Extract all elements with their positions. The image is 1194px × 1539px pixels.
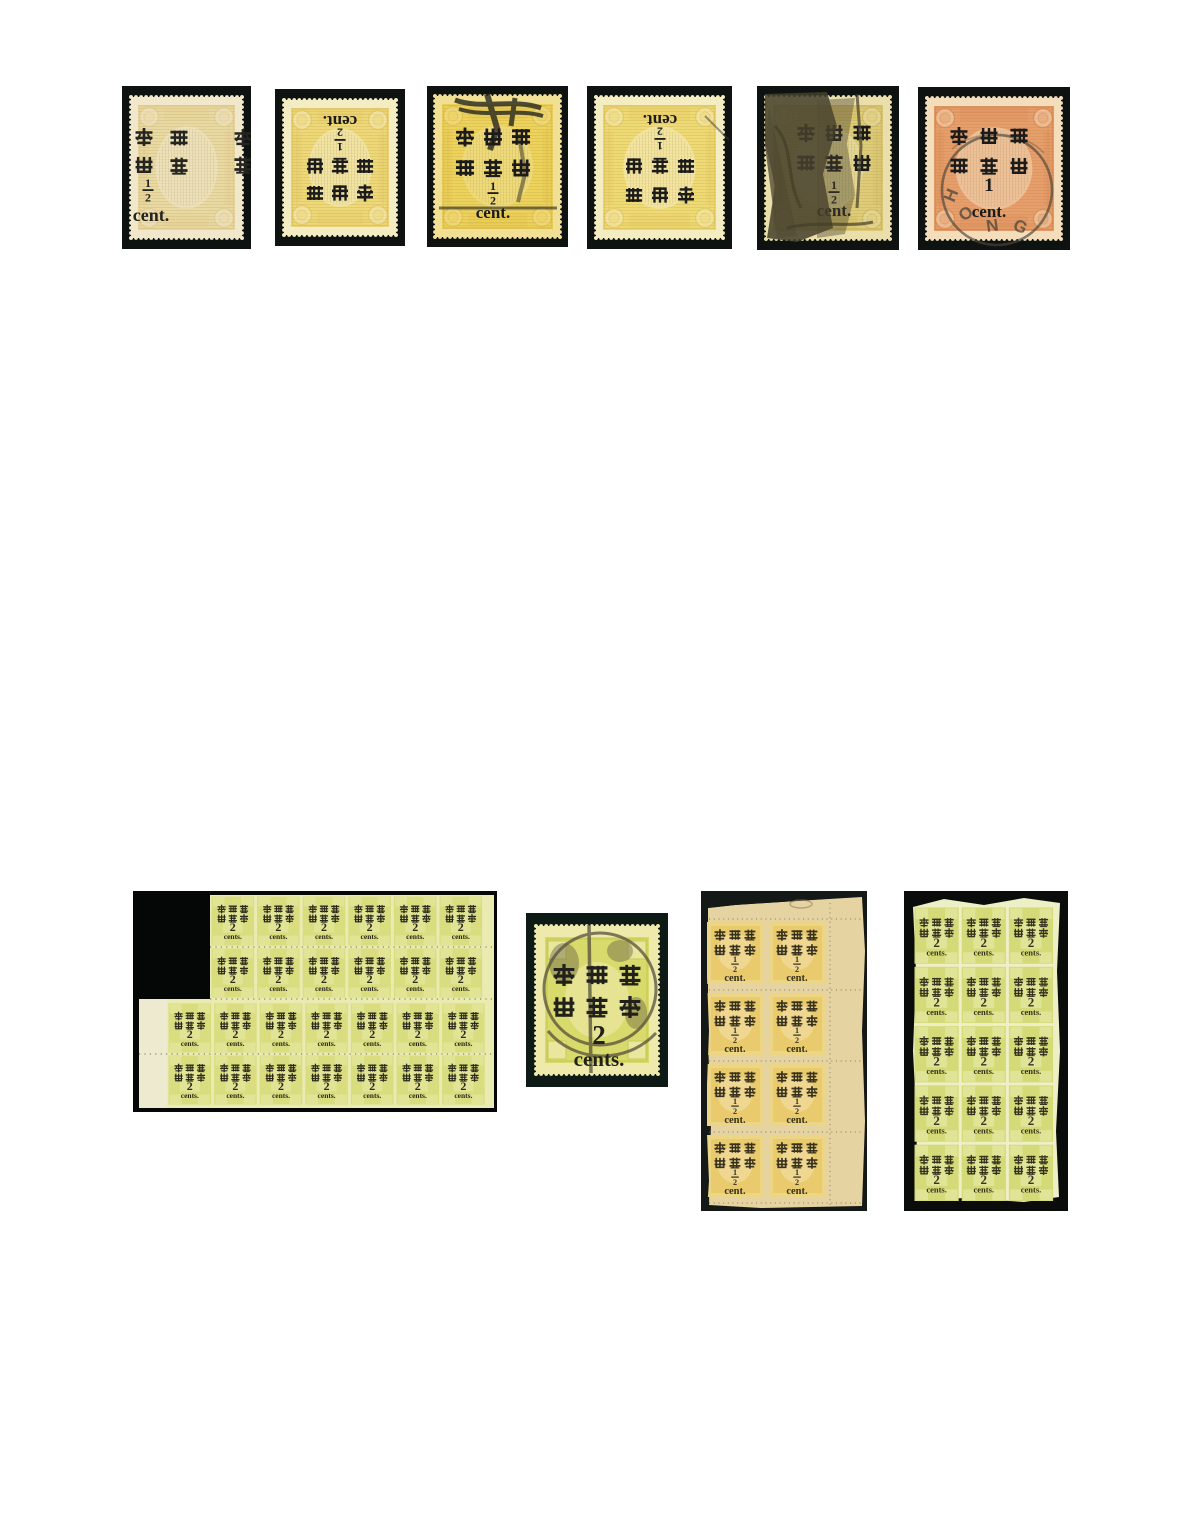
svg-text:cents.: cents. xyxy=(272,1091,290,1100)
svg-text:cents.: cents. xyxy=(318,1039,336,1048)
svg-text:cents.: cents. xyxy=(318,1091,336,1100)
svg-text:cents.: cents. xyxy=(181,1091,199,1100)
svg-text:cents.: cents. xyxy=(406,932,424,941)
svg-text:cents.: cents. xyxy=(974,1007,995,1017)
svg-text:cent.: cent. xyxy=(786,1186,808,1197)
svg-text:cents.: cents. xyxy=(226,1039,244,1048)
svg-text:cents.: cents. xyxy=(974,1185,995,1195)
svg-text:cents.: cents. xyxy=(363,1091,381,1100)
svg-text:cents.: cents. xyxy=(926,948,947,958)
svg-text:cents.: cents. xyxy=(1021,1007,1042,1017)
svg-text:cents.: cents. xyxy=(452,984,470,993)
svg-text:cents.: cents. xyxy=(272,1039,290,1048)
svg-text:cent.: cent. xyxy=(323,112,357,131)
svg-text:1: 1 xyxy=(984,175,994,196)
svg-text:cent.: cent. xyxy=(724,973,746,984)
svg-text:cent.: cent. xyxy=(643,111,677,130)
svg-text:cents.: cents. xyxy=(409,1039,427,1048)
svg-text:cents.: cents. xyxy=(452,932,470,941)
svg-text:cents.: cents. xyxy=(269,932,287,941)
svg-text:cents.: cents. xyxy=(361,984,379,993)
svg-text:cents.: cents. xyxy=(926,1125,947,1135)
svg-text:cent.: cent. xyxy=(133,205,169,225)
svg-text:cents.: cents. xyxy=(361,932,379,941)
svg-text:cents.: cents. xyxy=(1021,948,1042,958)
svg-text:cents.: cents. xyxy=(315,932,333,941)
svg-text:cents.: cents. xyxy=(574,1047,625,1071)
svg-text:cents.: cents. xyxy=(926,1007,947,1017)
svg-text:cents.: cents. xyxy=(226,1091,244,1100)
svg-text:cents.: cents. xyxy=(181,1039,199,1048)
svg-text:cent.: cent. xyxy=(972,202,1006,221)
svg-text:cents.: cents. xyxy=(454,1091,472,1100)
svg-text:cent.: cent. xyxy=(786,973,808,984)
svg-text:cents.: cents. xyxy=(269,984,287,993)
svg-text:cents.: cents. xyxy=(363,1039,381,1048)
svg-text:cents.: cents. xyxy=(224,932,242,941)
svg-text:cents.: cents. xyxy=(974,1066,995,1076)
svg-text:cents.: cents. xyxy=(926,1066,947,1076)
svg-text:cents.: cents. xyxy=(974,948,995,958)
svg-text:cents.: cents. xyxy=(454,1039,472,1048)
svg-text:cent.: cent. xyxy=(786,1115,808,1126)
svg-text:cents.: cents. xyxy=(224,984,242,993)
svg-text:cents.: cents. xyxy=(1021,1125,1042,1135)
svg-text:2: 2 xyxy=(592,1020,606,1050)
svg-text:cent.: cent. xyxy=(724,1044,746,1055)
svg-text:cent.: cent. xyxy=(476,203,510,222)
svg-text:cents.: cents. xyxy=(406,984,424,993)
svg-text:cent.: cent. xyxy=(724,1115,746,1126)
svg-text:cent.: cent. xyxy=(724,1186,746,1197)
svg-text:cents.: cents. xyxy=(1021,1066,1042,1076)
svg-text:cents.: cents. xyxy=(926,1185,947,1195)
svg-text:cents.: cents. xyxy=(409,1091,427,1100)
svg-text:cents.: cents. xyxy=(315,984,333,993)
svg-text:cents.: cents. xyxy=(974,1125,995,1135)
svg-text:cents.: cents. xyxy=(1021,1185,1042,1195)
svg-text:cent.: cent. xyxy=(786,1044,808,1055)
